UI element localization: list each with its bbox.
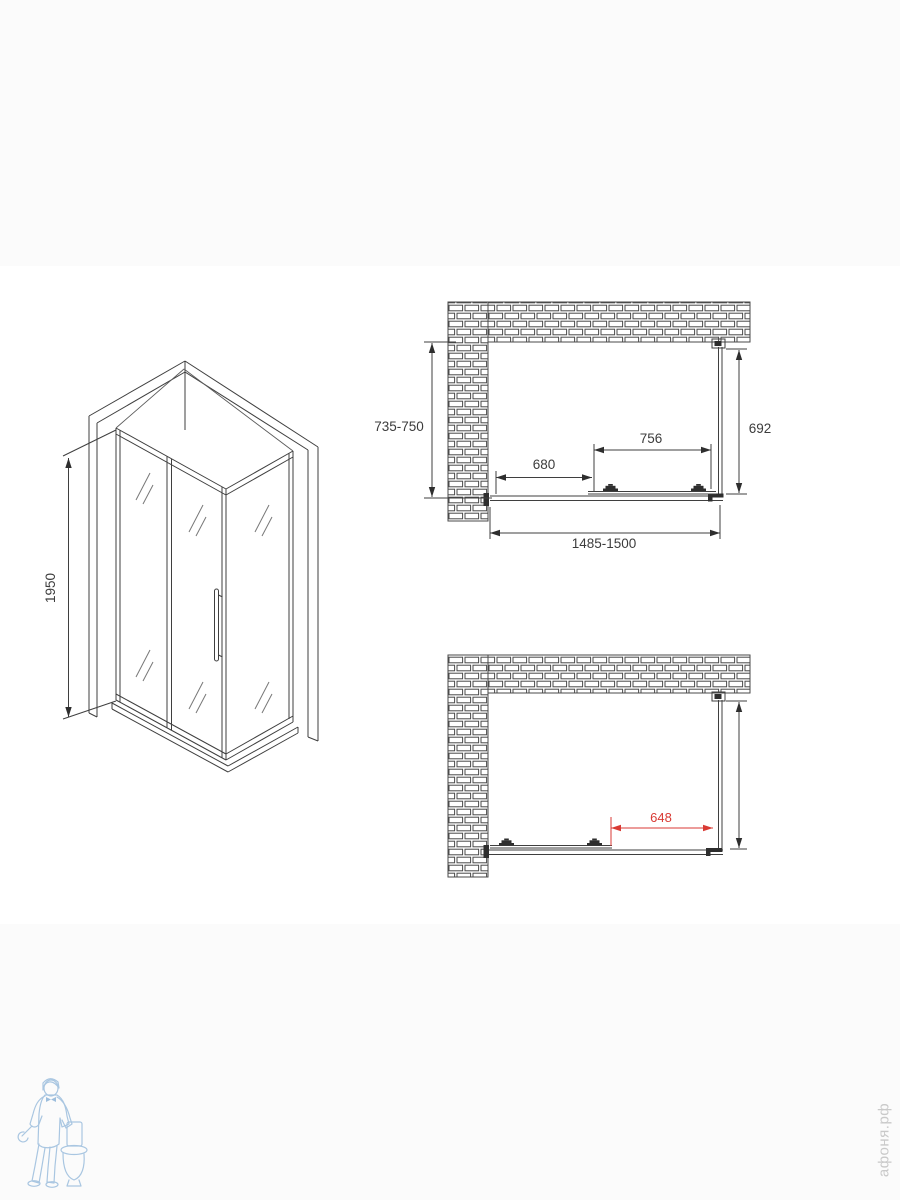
glass-shine-marks: [136, 473, 272, 713]
dim-door-label: 756: [640, 431, 663, 446]
roller: [603, 484, 618, 491]
roller: [587, 839, 602, 846]
wall-lines: [89, 361, 318, 741]
shower-enclosure: [116, 369, 293, 760]
sliding-door: [588, 484, 716, 494]
dim-side-label: 692: [749, 421, 772, 436]
dim-side: 692: [726, 349, 771, 494]
plan-view-closed: 735-750 692 756: [374, 302, 771, 551]
side-glass-panel: [712, 339, 725, 497]
plumber-logo: [18, 1079, 87, 1188]
brick-wall-vertical: [448, 655, 488, 877]
door-handle: [215, 589, 223, 661]
side-glass-panel: [712, 692, 725, 852]
drawing-canvas: 1950: [0, 0, 900, 1200]
dim-door: 756: [594, 431, 711, 492]
sliding-door-open: [490, 839, 612, 849]
bottom-rail: [484, 845, 724, 858]
isometric-view: 1950: [43, 361, 318, 772]
plan-view-open: 648: [448, 655, 750, 877]
technical-drawing: 1950: [0, 0, 900, 1200]
dim-width: 1485-1500: [490, 505, 720, 551]
dim-depth-label: 735-750: [374, 419, 424, 434]
brick-wall-horizontal: [488, 302, 750, 342]
dim-opening-label: 680: [533, 457, 556, 472]
dim-open-width-red: 648: [611, 810, 713, 846]
dim-open-width-label: 648: [650, 810, 672, 825]
dim-opening: 680: [496, 457, 592, 494]
dim-width-label: 1485-1500: [572, 536, 637, 551]
dim-side-unlabeled: [726, 701, 747, 849]
brick-wall-vertical: [448, 302, 488, 521]
dim-height: 1950: [43, 430, 116, 719]
brick-wall-horizontal: [488, 655, 750, 693]
dim-height-label: 1950: [43, 573, 58, 603]
roller: [499, 839, 514, 846]
roller: [691, 484, 706, 491]
site-watermark: афоня.рф: [876, 1103, 893, 1177]
bottom-rail: [484, 493, 724, 506]
